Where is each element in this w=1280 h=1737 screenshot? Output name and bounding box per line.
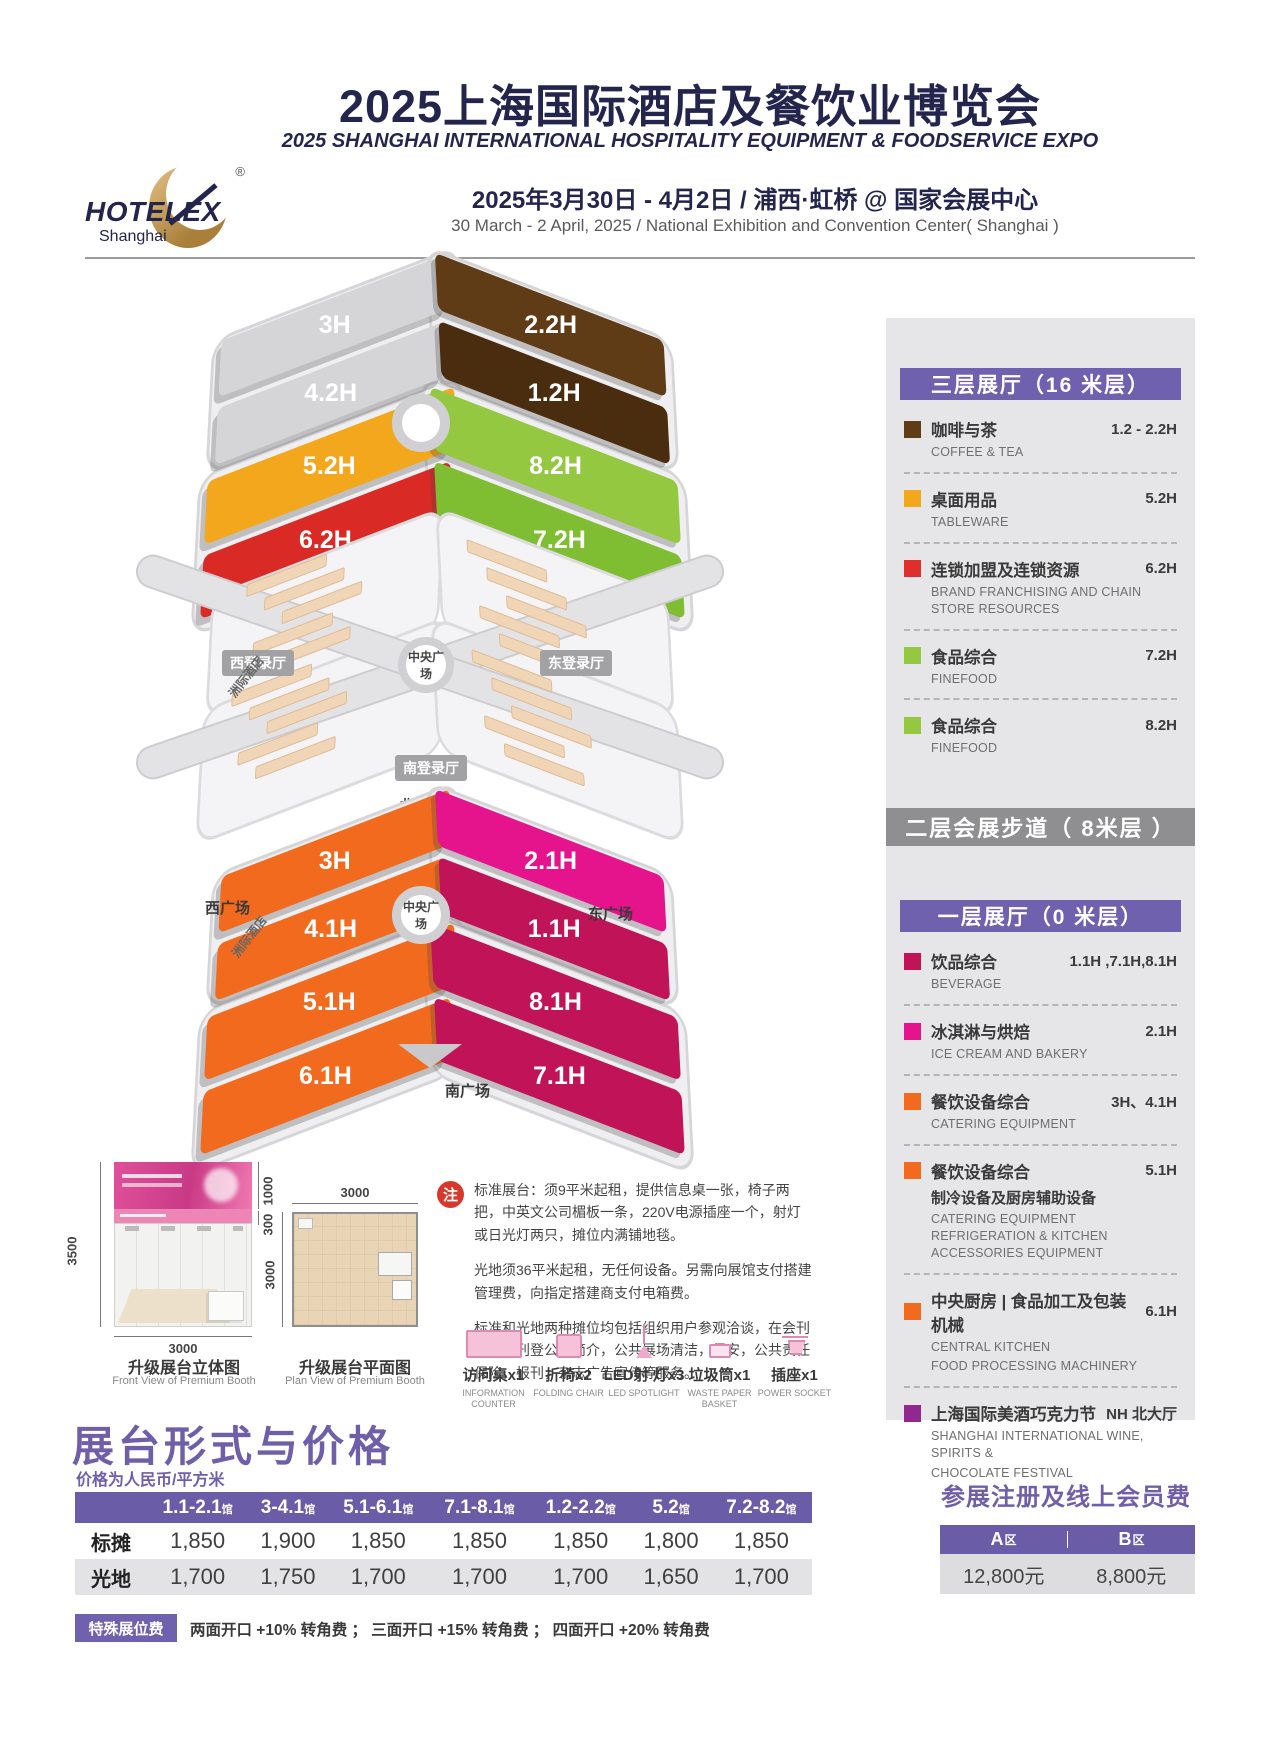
legend-color-swatch bbox=[904, 421, 921, 438]
legend-header-walkway: 二层会展步道（ 8米层 ） bbox=[886, 808, 1195, 846]
legend-color-swatch bbox=[904, 953, 921, 970]
legend-halls: 1.1H ,7.1H,8.1H bbox=[1069, 953, 1177, 970]
pricing-title: 展台形式与价格 bbox=[72, 1413, 394, 1474]
event-date-en: 30 March - 2 April, 2025 / National Exhi… bbox=[340, 216, 1170, 236]
legend-label-cn: 食品综合 bbox=[931, 644, 1135, 668]
walkway-central-plaza: 中央广场 bbox=[398, 637, 454, 693]
dimension-line bbox=[258, 1211, 259, 1225]
legend-halls: 1.2 - 2.2H bbox=[1111, 421, 1177, 438]
legend-label-en: CATERING EQUIPMENT bbox=[931, 1116, 1177, 1133]
legend-label-cn: 食品综合 bbox=[931, 713, 1135, 737]
zone-b-fee: 8,800元 bbox=[1068, 1554, 1196, 1594]
legend-halls: 6.1H bbox=[1145, 1303, 1177, 1320]
dimension-line bbox=[282, 1212, 283, 1327]
legend-label-cn: 冰淇淋与烘焙 bbox=[931, 1019, 1135, 1043]
legend-label-cn: 桌面用品 bbox=[931, 487, 1135, 511]
legend-header-floor1: 一层展厅（0 米层） bbox=[900, 900, 1181, 932]
dimension-3500: 3500 bbox=[65, 1226, 80, 1266]
legend-label-en: SHANGHAI INTERNATIONAL WINE, SPIRITS & bbox=[931, 1428, 1177, 1462]
furniture-label-en: WASTE PAPER BASKET bbox=[682, 1388, 757, 1411]
note-paragraph-rawspace: 光地须36平米起租，无任何设备。另需向展馆支付搭建管理费，向指定搭建商支付电箱费… bbox=[474, 1259, 814, 1304]
legend-color-swatch bbox=[904, 490, 921, 507]
price-cell: 1,850 bbox=[530, 1523, 631, 1559]
registration-header: A区 B区 bbox=[940, 1525, 1195, 1554]
furniture-item-spotlight: LED射 灯x3 LED SPOTLIGHT bbox=[606, 1322, 682, 1411]
furniture-label-cn: 垃圾筒x1 bbox=[689, 1364, 751, 1385]
price-cell: 1,900 bbox=[248, 1523, 327, 1559]
price-cell: 1,700 bbox=[147, 1559, 248, 1595]
hotelex-logo: ® HOTELEX Shanghai bbox=[85, 164, 245, 262]
event-date-cn: 2025年3月30日 - 4月2日 / 浦西·虹桥 @ 国家会展中心 bbox=[340, 180, 1170, 215]
price-cell: 1,700 bbox=[429, 1559, 530, 1595]
pricing-header-col: 5.2馆 bbox=[631, 1492, 710, 1523]
legend-halls: 2.1H bbox=[1145, 1023, 1177, 1040]
booth-front-view bbox=[114, 1223, 252, 1327]
dimension-3000-plan-top: 3000 bbox=[292, 1185, 418, 1200]
legend-item-franchising: 连锁加盟及连锁资源6.2H BRAND FRANCHISING AND CHAI… bbox=[904, 544, 1177, 631]
legend-label-cn2: 制冷设备及厨房辅助设备 bbox=[931, 1187, 1177, 1208]
legend-color-swatch bbox=[904, 560, 921, 577]
legend-halls: 5.1H bbox=[1145, 1162, 1177, 1179]
pricing-header-col: 3-4.1馆 bbox=[248, 1492, 327, 1523]
pricing-subtitle: 价格为人民币/平方米 bbox=[76, 1466, 224, 1490]
row-label: 光地 bbox=[75, 1559, 147, 1595]
legend-item-finefood-82: 食品综合8.2H FINEFOOD bbox=[904, 700, 1177, 768]
special-fee-text: 两面开口 +10% 转角费 ； 三面开口 +15% 转角费 ； 四面开口 +20… bbox=[190, 1618, 710, 1640]
legend-item-tableware: 桌面用品5.2H TABLEWARE bbox=[904, 474, 1177, 544]
zone-b-header: B区 bbox=[1068, 1525, 1195, 1554]
legend-label-cn: 餐饮设备综合 bbox=[931, 1089, 1101, 1113]
legend-label-cn: 饮品综合 bbox=[931, 949, 1059, 973]
west-plaza-label: 西广场 bbox=[205, 897, 250, 918]
special-fee-badge: 特殊展位费 bbox=[75, 1614, 177, 1642]
zone-a-header: A区 bbox=[940, 1525, 1067, 1554]
booth-furniture-list: 访问桌x1 INFORMATION COUNTER 折椅x2 FOLDING C… bbox=[456, 1322, 832, 1411]
legend-label-cn: 中央厨房 | 食品加工及包装机械 bbox=[931, 1288, 1135, 1336]
legend-label-en: FINEFOOD bbox=[931, 671, 1177, 688]
legend-halls: 3H、4.1H bbox=[1111, 1091, 1177, 1112]
booth-fascia-board bbox=[114, 1209, 252, 1223]
price-cell: 1,650 bbox=[631, 1559, 710, 1595]
folding-chair-icon bbox=[556, 1334, 582, 1358]
dimension-line bbox=[258, 1162, 259, 1209]
dimension-300: 300 bbox=[261, 1204, 276, 1236]
legend-color-swatch bbox=[904, 1162, 921, 1179]
pricing-row-standard: 标摊 1,850 1,900 1,850 1,850 1,850 1,800 1… bbox=[75, 1523, 812, 1559]
legend-label-en: COFFEE & TEA bbox=[931, 444, 1177, 461]
pricing-table: 1.1-2.1馆 3-4.1馆 5.1-6.1馆 7.1-8.1馆 1.2-2.… bbox=[75, 1492, 812, 1595]
furniture-item-counter: 访问桌x1 INFORMATION COUNTER bbox=[456, 1322, 531, 1411]
zone-a-fee: 12,800元 bbox=[940, 1554, 1068, 1594]
page-title-en: 2025 SHANGHAI INTERNATIONAL HOSPITALITY … bbox=[240, 130, 1140, 153]
pricing-header-col: 7.1-8.1馆 bbox=[429, 1492, 530, 1523]
furniture-item-socket: 插座x1 POWER SOCKET bbox=[757, 1322, 832, 1411]
price-cell: 1,700 bbox=[530, 1559, 631, 1595]
price-cell: 1,800 bbox=[631, 1523, 710, 1559]
legend-label-en2: FOOD PROCESSING MACHINERY bbox=[931, 1358, 1177, 1375]
legend-item-coffee-tea: 咖啡与茶1.2 - 2.2H COFFEE & TEA bbox=[904, 404, 1177, 474]
page-title-cn: 2025上海国际酒店及餐饮业博览会 bbox=[250, 70, 1130, 135]
note-badge: 注 bbox=[437, 1181, 464, 1208]
price-cell: 1,850 bbox=[429, 1523, 530, 1559]
legend-color-swatch bbox=[904, 1023, 921, 1040]
power-socket-icon bbox=[782, 1336, 808, 1358]
logo-registered-mark: ® bbox=[235, 164, 245, 179]
price-cell: 1,850 bbox=[328, 1523, 429, 1559]
legend-halls: 7.2H bbox=[1145, 647, 1177, 664]
plan-counter-small bbox=[392, 1280, 412, 1300]
pricing-header-row: 1.1-2.1馆 3-4.1馆 5.1-6.1馆 7.1-8.1馆 1.2-2.… bbox=[75, 1492, 812, 1523]
header-divider bbox=[85, 257, 1195, 259]
legend-label-en: BEVERAGE bbox=[931, 976, 1177, 993]
waste-basket-icon bbox=[709, 1344, 731, 1358]
legend-color-swatch bbox=[904, 1093, 921, 1110]
legend-halls: NH 北大厅 bbox=[1106, 1403, 1177, 1424]
legend-label-cn: 上海国际美酒巧克力节 bbox=[931, 1401, 1096, 1425]
legend-halls: 5.2H bbox=[1145, 490, 1177, 507]
plan-counter bbox=[378, 1252, 412, 1276]
furniture-label-en: FOLDING CHAIR bbox=[533, 1388, 604, 1399]
legend-item-finefood-72: 食品综合7.2H FINEFOOD bbox=[904, 631, 1177, 701]
led-spotlight-icon bbox=[632, 1324, 656, 1358]
ground-central-plaza: 中央广场 bbox=[392, 886, 450, 944]
legend-item-central-kitchen: 中央厨房 | 食品加工及包装机械6.1H CENTRAL KITCHEN FOO… bbox=[904, 1275, 1177, 1389]
furniture-label-en: INFORMATION COUNTER bbox=[456, 1388, 531, 1411]
dimension-line bbox=[292, 1203, 418, 1204]
legend-color-swatch bbox=[904, 1303, 921, 1320]
pricing-row-rawspace: 光地 1,700 1,750 1,700 1,700 1,700 1,650 1… bbox=[75, 1559, 812, 1595]
furniture-label-cn: 访问桌x1 bbox=[463, 1364, 525, 1385]
registration-title: 参展注册及线上会员费 bbox=[935, 1477, 1197, 1512]
row-label: 标摊 bbox=[75, 1523, 147, 1559]
south-registration-hall-label: 南登录厅 bbox=[395, 755, 467, 781]
pricing-header-col: 1.2-2.2馆 bbox=[530, 1492, 631, 1523]
south-plaza-label: 南广场 bbox=[445, 1080, 490, 1101]
dimension-line bbox=[114, 1336, 252, 1337]
furniture-label-cn: 插座x1 bbox=[771, 1364, 818, 1385]
legend-label-en: CATERING EQUIPMENT REFRIGERATION & KITCH… bbox=[931, 1211, 1177, 1262]
plan-view-caption-en: Plan View of Premium Booth bbox=[270, 1375, 440, 1387]
logo-city: Shanghai bbox=[99, 228, 167, 246]
legend-label-en: CENTRAL KITCHEN bbox=[931, 1339, 1177, 1356]
booth-banner-graphic bbox=[114, 1162, 252, 1209]
legend-label-cn: 餐饮设备综合 bbox=[931, 1159, 1135, 1183]
legend-halls: 6.2H bbox=[1145, 560, 1177, 577]
legend-halls: 8.2H bbox=[1145, 717, 1177, 734]
furniture-label-en: LED SPOTLIGHT bbox=[608, 1388, 679, 1399]
legend-label-en: BRAND FRANCHISING AND CHAIN STORE RESOUR… bbox=[931, 584, 1177, 618]
legend-item-refrigeration: 餐饮设备综合5.1H 制冷设备及厨房辅助设备 CATERING EQUIPMEN… bbox=[904, 1146, 1177, 1275]
legend-floor1-items: 饮品综合1.1H ,7.1H,8.1H BEVERAGE 冰淇淋与烘焙2.1H … bbox=[886, 932, 1195, 1493]
price-cell: 1,700 bbox=[328, 1559, 429, 1595]
booth-spotlights bbox=[125, 1226, 243, 1231]
east-registration-hall-label: 东登录厅 bbox=[540, 650, 612, 676]
furniture-label-cn: 折椅x2 bbox=[545, 1364, 592, 1385]
plan-chip bbox=[298, 1218, 313, 1229]
dimension-1000: 1000 bbox=[261, 1166, 276, 1206]
legend-color-swatch bbox=[904, 1405, 921, 1422]
booth-plan-view bbox=[292, 1212, 418, 1327]
booth-counter bbox=[208, 1291, 244, 1321]
front-view-caption-en: Front View of Premium Booth bbox=[94, 1375, 274, 1387]
legend-panel: 三层展厅（16 米层） 咖啡与茶1.2 - 2.2H COFFEE & TEA … bbox=[886, 318, 1195, 1420]
legend-label-cn: 连锁加盟及连锁资源 bbox=[931, 557, 1135, 581]
legend-floor3-items: 咖啡与茶1.2 - 2.2H COFFEE & TEA 桌面用品5.2H TAB… bbox=[886, 400, 1195, 768]
price-cell: 1,750 bbox=[248, 1559, 327, 1595]
pricing-header-empty bbox=[75, 1492, 147, 1523]
furniture-item-chair: 折椅x2 FOLDING CHAIR bbox=[531, 1322, 606, 1411]
legend-label-en: FINEFOOD bbox=[931, 740, 1177, 757]
legend-item-catering-equipment: 餐饮设备综合3H、4.1H CATERING EQUIPMENT bbox=[904, 1076, 1177, 1146]
pricing-header-col: 1.1-2.1馆 bbox=[147, 1492, 248, 1523]
legend-label-en: ICE CREAM AND BAKERY bbox=[931, 1046, 1177, 1063]
legend-item-beverage: 饮品综合1.1H ,7.1H,8.1H BEVERAGE bbox=[904, 936, 1177, 1006]
legend-item-icecream-bakery: 冰淇淋与烘焙2.1H ICE CREAM AND BAKERY bbox=[904, 1006, 1177, 1076]
dimension-3000-plan-left: 3000 bbox=[263, 1250, 278, 1290]
logo-wordmark: HOTELEX bbox=[85, 196, 221, 228]
legend-color-swatch bbox=[904, 647, 921, 664]
upper-central-ring bbox=[392, 394, 450, 452]
price-cell: 1,850 bbox=[711, 1523, 812, 1559]
dimension-line bbox=[100, 1162, 101, 1327]
pricing-header-col: 5.1-6.1馆 bbox=[328, 1492, 429, 1523]
pricing-header-col: 7.2-8.2馆 bbox=[711, 1492, 812, 1523]
price-cell: 1,850 bbox=[147, 1523, 248, 1559]
furniture-label-en: POWER SOCKET bbox=[758, 1388, 832, 1399]
legend-color-swatch bbox=[904, 717, 921, 734]
information-counter-icon bbox=[466, 1330, 522, 1358]
legend-label-en: TABLEWARE bbox=[931, 514, 1177, 531]
east-plaza-label: 东广场 bbox=[588, 903, 633, 924]
registration-values: 12,800元 8,800元 bbox=[940, 1554, 1195, 1594]
furniture-item-basket: 垃圾筒x1 WASTE PAPER BASKET bbox=[682, 1322, 757, 1411]
price-cell: 1,700 bbox=[711, 1559, 812, 1595]
expo-poster: 2025上海国际酒店及餐饮业博览会 2025 SHANGHAI INTERNAT… bbox=[0, 0, 1280, 1737]
furniture-label-cn: LED射 灯x3 bbox=[604, 1364, 685, 1385]
note-paragraph-standard: 标准展台：须9平米起租，提供信息桌一张，椅子两把，中英文公司楣板一条，220V电… bbox=[474, 1179, 814, 1246]
legend-label-cn: 咖啡与茶 bbox=[931, 417, 1101, 441]
legend-header-floor3: 三层展厅（16 米层） bbox=[900, 368, 1181, 400]
